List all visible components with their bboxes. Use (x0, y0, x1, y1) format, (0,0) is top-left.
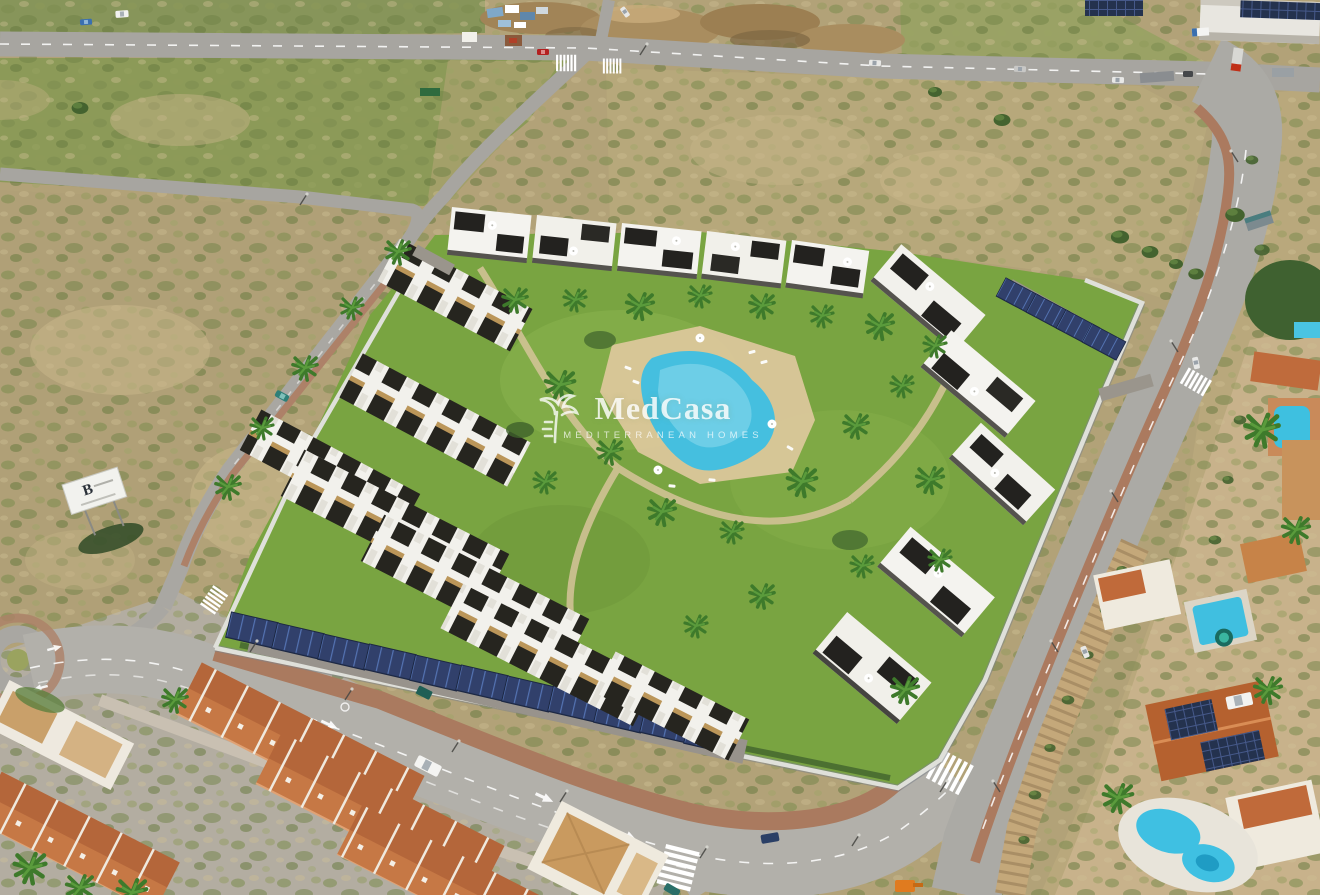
warehouse-solar-roof (1240, 0, 1320, 20)
aerial-photo: B MedCasa MEDITERRANEAN HOMES (0, 0, 1320, 895)
container (1272, 68, 1294, 77)
road-sign (420, 88, 440, 96)
aerial-scene: B (0, 0, 1320, 895)
solar-roof-building (1085, 0, 1143, 16)
hut (462, 32, 477, 42)
